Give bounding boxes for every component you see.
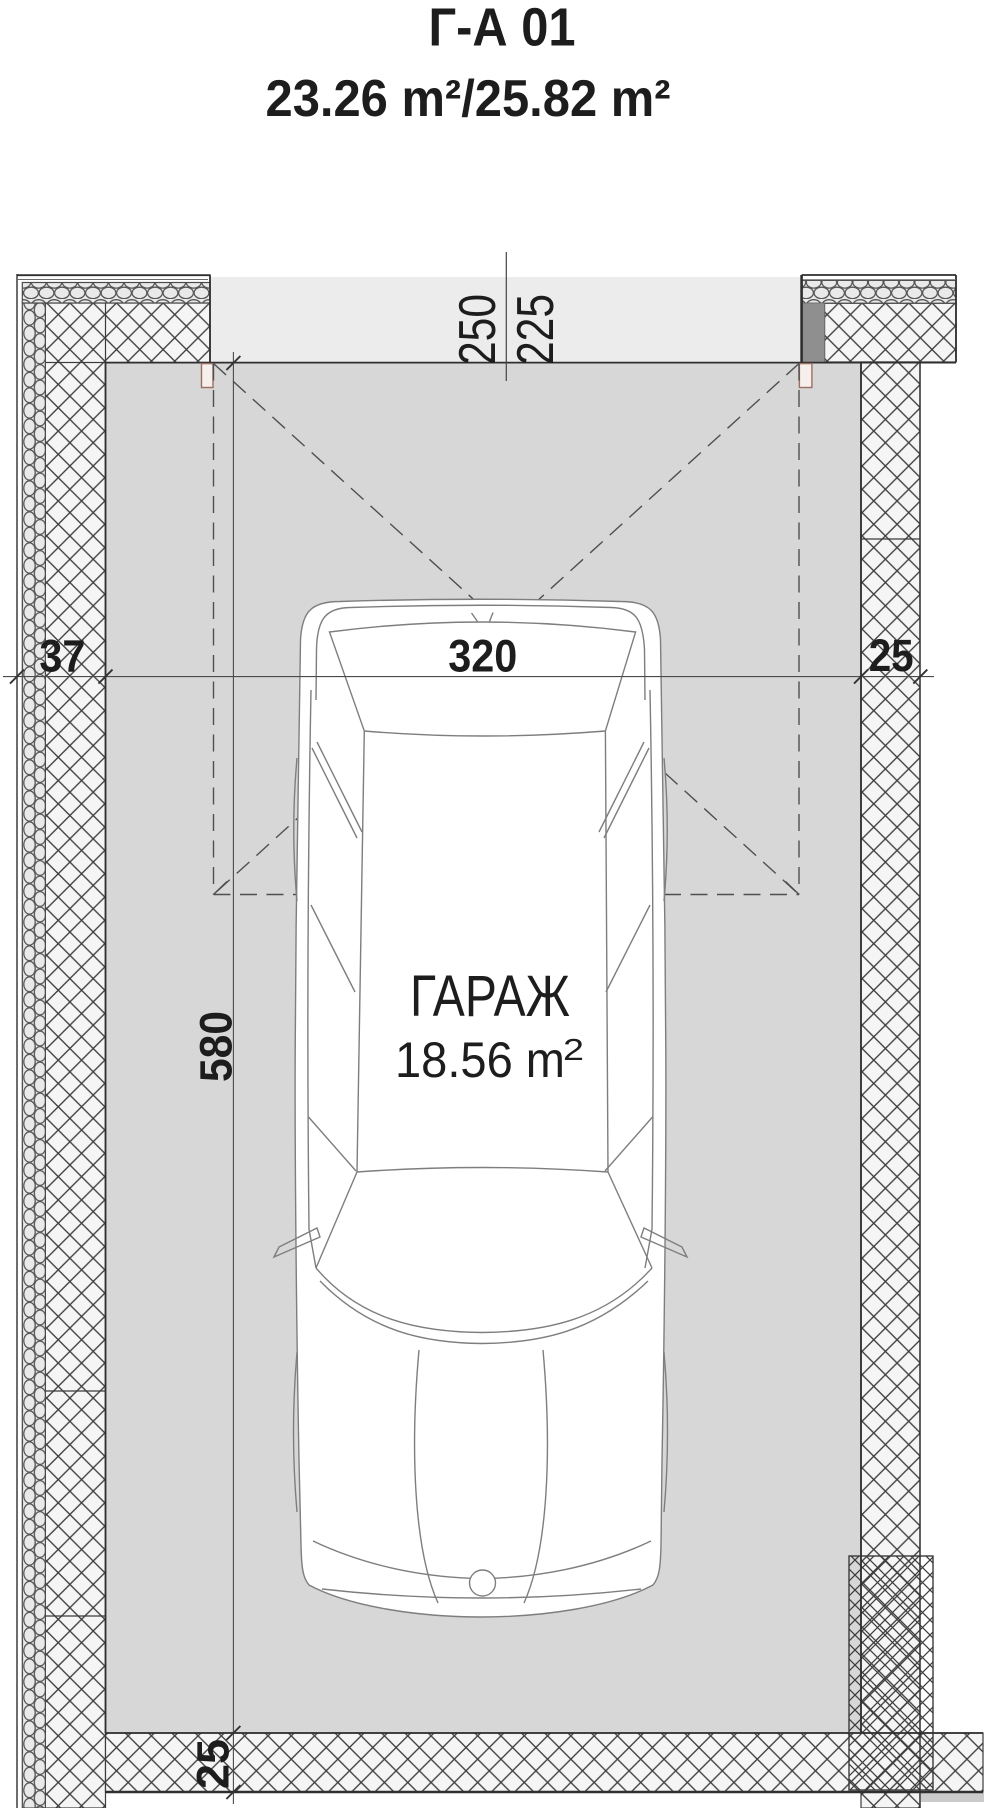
- svg-text:Г-А 01: Г-А 01: [429, 0, 576, 58]
- svg-text:37: 37: [39, 630, 85, 681]
- svg-text:25: 25: [188, 1739, 239, 1789]
- svg-text:25: 25: [869, 630, 914, 681]
- svg-text:320: 320: [448, 631, 517, 682]
- svg-text:225: 225: [507, 294, 565, 365]
- svg-text:18.56 m: 18.56 m: [395, 1032, 565, 1088]
- svg-text:ГАРАЖ: ГАРАЖ: [410, 964, 570, 1029]
- svg-text:580: 580: [191, 1011, 242, 1082]
- svg-text:23.26 m²/25.82 m²: 23.26 m²/25.82 m²: [266, 70, 671, 128]
- svg-text:2: 2: [563, 1032, 584, 1067]
- svg-text:250: 250: [449, 294, 507, 365]
